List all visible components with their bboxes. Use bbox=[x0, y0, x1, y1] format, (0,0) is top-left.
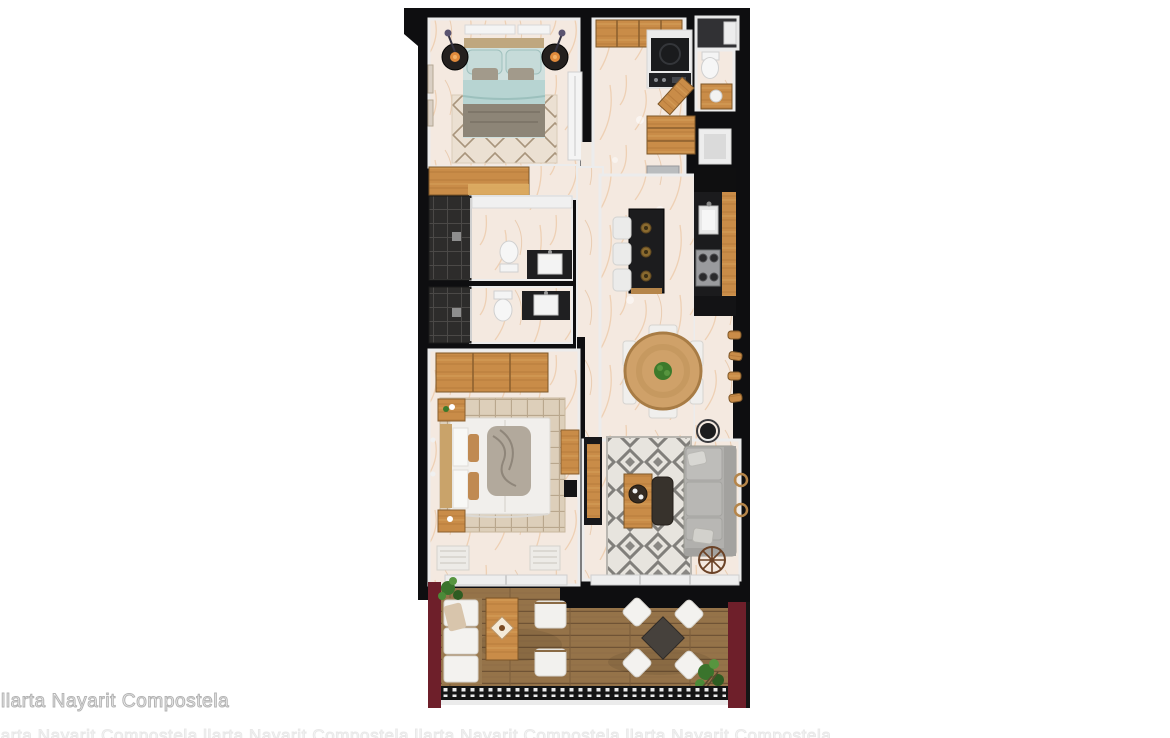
candle-1 bbox=[431, 438, 436, 443]
floorplan-svg bbox=[0, 0, 1170, 738]
bed-2 bbox=[440, 418, 550, 517]
bar-stool-1 bbox=[613, 217, 631, 239]
bathroom-1 bbox=[429, 196, 572, 280]
entry-hall bbox=[593, 19, 694, 179]
decor-wheel bbox=[699, 547, 725, 573]
laundry-niche bbox=[647, 30, 692, 88]
armchair-1 bbox=[535, 601, 566, 628]
cooktop bbox=[696, 250, 720, 286]
headboard-2 bbox=[440, 424, 452, 508]
bath-1-shower bbox=[429, 196, 471, 280]
bath-1-toilet bbox=[500, 241, 518, 263]
armchair-2 bbox=[535, 649, 566, 676]
bath-1-sink bbox=[538, 254, 562, 274]
kitchen-island bbox=[629, 209, 664, 294]
shower-valve-2 bbox=[452, 308, 461, 317]
wardrobe-2 bbox=[436, 353, 548, 392]
pantry-cabinet bbox=[647, 116, 695, 154]
floorplan-image: llarta Nayarit Compostela llarta Nayarit… bbox=[0, 0, 1170, 738]
living-window bbox=[591, 575, 739, 585]
tall-black-unit bbox=[694, 168, 736, 192]
terrace-wall-left bbox=[428, 582, 441, 708]
outdoor-sofa bbox=[442, 598, 482, 684]
bedroom-2-tv bbox=[564, 480, 577, 497]
bar-stool-2 bbox=[613, 243, 631, 265]
wall-frame-1 bbox=[428, 65, 433, 93]
wall-frame-2 bbox=[428, 100, 433, 126]
washer bbox=[651, 38, 689, 71]
bath-2-sink bbox=[534, 295, 558, 315]
sofa bbox=[684, 446, 736, 556]
dining-table bbox=[625, 333, 701, 409]
table-plant bbox=[654, 362, 672, 380]
bar-stool-3 bbox=[613, 269, 631, 291]
terrace-wall-right bbox=[728, 602, 748, 708]
living-room bbox=[583, 420, 747, 585]
tv-console bbox=[584, 437, 602, 525]
bedroom-1-door-opening bbox=[581, 142, 593, 168]
bath-2-shower bbox=[429, 287, 471, 343]
bedroom-1 bbox=[428, 19, 593, 199]
shower-valve bbox=[452, 232, 461, 241]
bed-1 bbox=[463, 38, 545, 138]
toilet bbox=[702, 58, 719, 79]
powder-sink bbox=[710, 90, 722, 102]
bathroom-2 bbox=[429, 287, 572, 343]
outdoor-coffee-table bbox=[486, 598, 518, 660]
ottoman bbox=[652, 477, 673, 525]
white-fixture bbox=[724, 22, 736, 44]
floor-lamp bbox=[697, 420, 719, 442]
nightstand-2-top bbox=[438, 399, 465, 421]
kitchen-counter bbox=[694, 168, 736, 316]
coffee-table bbox=[624, 474, 652, 528]
watermark-edge-text: llarta Nayarit Compostela llarta Nayarit… bbox=[0, 726, 1170, 738]
dresser bbox=[465, 25, 515, 34]
candle-2 bbox=[431, 472, 436, 477]
utility-room bbox=[696, 17, 738, 49]
watermark-text: llarta Nayarit Compostela bbox=[1, 691, 229, 713]
powder-room bbox=[696, 50, 734, 110]
bedroom-1-closet-floor bbox=[529, 165, 579, 199]
nightstand-2-bottom bbox=[438, 510, 465, 532]
bath-1-mirror-band bbox=[472, 196, 572, 208]
bedroom-2-desk bbox=[561, 430, 579, 474]
bath-2-toilet bbox=[494, 299, 512, 321]
bedroom-2 bbox=[429, 350, 579, 585]
dresser-2 bbox=[518, 25, 550, 34]
